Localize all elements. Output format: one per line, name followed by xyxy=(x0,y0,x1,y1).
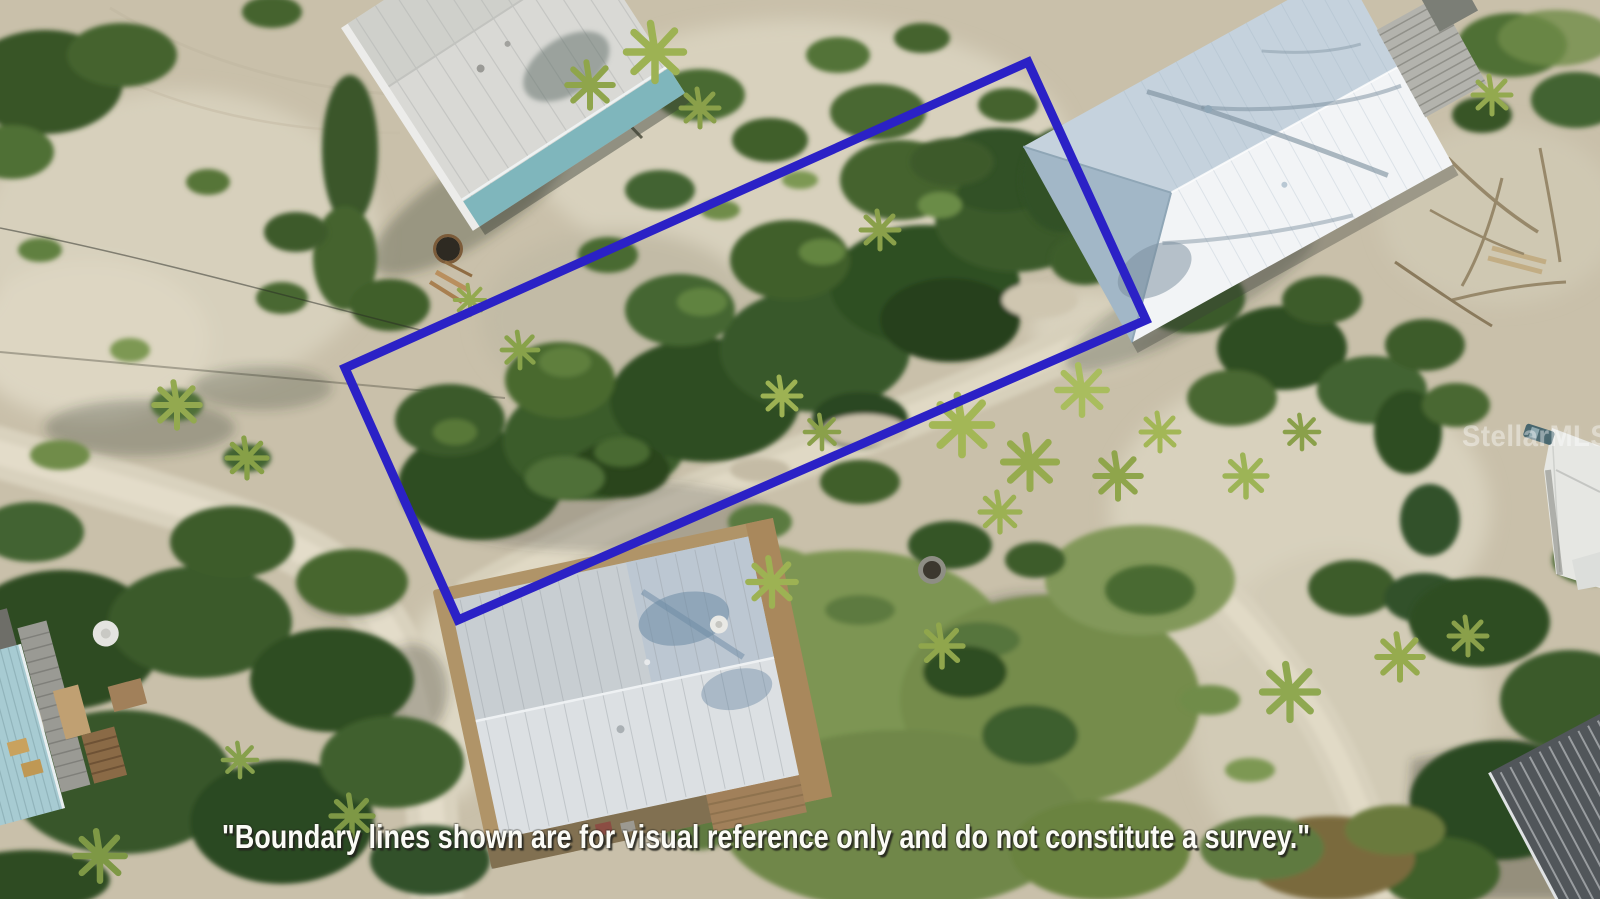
aerial-listing-photo: StellarMLS "Boundary lines shown are for… xyxy=(0,0,1600,899)
fire-pit xyxy=(918,556,946,584)
aerial-photo-art xyxy=(0,0,1600,899)
